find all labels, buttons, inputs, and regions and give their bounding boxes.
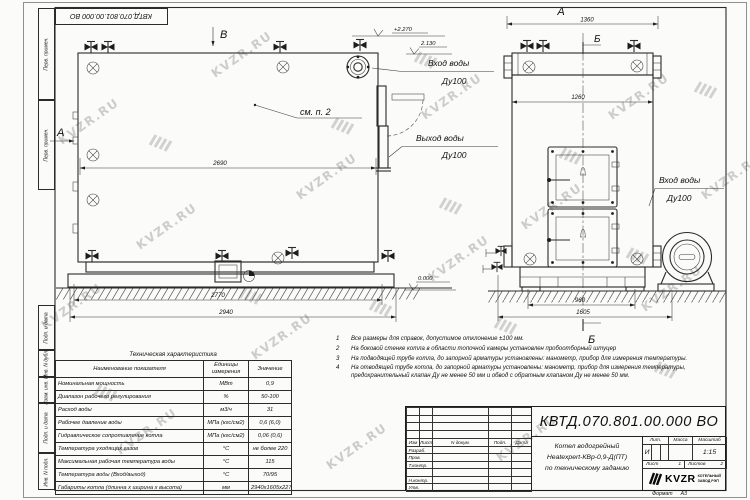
side-stamp-label: Взам. инв. N bbox=[44, 375, 50, 404]
scale-header: Масштаб bbox=[693, 437, 727, 445]
watermark-text: KVZR.RU bbox=[426, 232, 492, 284]
view-b-label: В bbox=[220, 29, 227, 41]
valve-symbol bbox=[86, 251, 99, 263]
format-value: А3 bbox=[681, 491, 687, 497]
table-row: Диапазон рабочего регулирования%50-100 bbox=[56, 391, 292, 404]
side-stamp-label: Инв. N подл. bbox=[44, 457, 50, 486]
dim-2940-label: 2940 bbox=[218, 309, 233, 316]
watermark-logo-icon bbox=[695, 82, 716, 98]
title-block: Изм Лист N докум. Подп. Дата Разраб. Про… bbox=[405, 406, 726, 491]
sheets-value: 2 bbox=[720, 462, 723, 467]
note-number: 2 bbox=[336, 346, 351, 354]
signature-row: Пров. bbox=[407, 454, 532, 462]
watermark-text: KVZR.RU bbox=[294, 150, 360, 202]
side-stamp-perv-primen-2: Перв. примен. bbox=[38, 100, 55, 190]
side-stamp-podp-data-2: Подп. и дата bbox=[38, 403, 55, 453]
valve-symbol bbox=[216, 251, 229, 263]
description-line: по техническому заданию bbox=[532, 464, 642, 475]
title-block-info: Лит. Масса Масштаб И 1:15 Лист 1 Листов … bbox=[642, 437, 726, 490]
description-line: Котел водогрейный bbox=[532, 442, 642, 453]
doc-description: Котел водогрейный Heatexpert-КВр-0,9-Д(П… bbox=[531, 437, 642, 490]
lifting-eye-icon bbox=[277, 61, 289, 73]
front-view-label: А bbox=[556, 6, 564, 18]
watermark-logo-icon bbox=[627, 248, 648, 264]
side-stamp-inv-podl: Инв. N подл. bbox=[38, 453, 55, 490]
side-stamp-label: Инв. N дубл. bbox=[44, 349, 50, 378]
lifting-eye-icon bbox=[524, 253, 536, 265]
valve-symbol bbox=[491, 262, 502, 272]
side-stamp-label: Подп. и дата bbox=[44, 412, 50, 443]
scale-value: 1:15 bbox=[693, 445, 727, 461]
watermark-logo-icon bbox=[150, 135, 171, 151]
dim-1360: А 1360 bbox=[507, 6, 658, 29]
tech-header: Единицы измерения bbox=[204, 361, 249, 378]
watermark-text: KVZR.RU bbox=[639, 262, 705, 314]
outlet-water-label: Выход воды bbox=[416, 133, 465, 143]
watermark-text: KVZR.RU bbox=[134, 200, 200, 252]
table-row: Гидравлическое сопротивление котлаМПа (к… bbox=[56, 430, 292, 443]
front-view: А 1360 Б 1260 bbox=[483, 6, 726, 346]
inlet-dn-label: Ду100 bbox=[441, 76, 467, 86]
side-stamp-inv-dubl: Инв. N дубл. bbox=[38, 350, 55, 377]
dim-960-label: 960 bbox=[575, 297, 586, 304]
table-row: Номинальная мощностьМВт0,9 bbox=[56, 378, 292, 391]
format-label: ФорматА3 bbox=[652, 491, 695, 497]
view-a-label: А bbox=[56, 127, 64, 139]
company-name-line: ЗАВОД РЭП bbox=[698, 479, 721, 483]
kvzr-logo-icon bbox=[649, 472, 663, 485]
outlet-dn-label: Ду100 bbox=[441, 150, 467, 160]
callout-see-note-2: см. п. 2 bbox=[254, 104, 362, 118]
elevation-top: +2.270 bbox=[352, 27, 445, 36]
note-number: 3 bbox=[336, 356, 351, 364]
sheet-label: Лист bbox=[646, 462, 658, 467]
drain-valves bbox=[483, 246, 512, 273]
watermark-text: KVZR.RU bbox=[56, 95, 122, 147]
dim-1260-label: 1260 bbox=[571, 95, 585, 101]
doc-number: КВТД.070.801.00.000 ВО bbox=[531, 407, 726, 437]
dim-2770-label: 2770 bbox=[210, 292, 225, 299]
watermark-text: KVZR.RU bbox=[209, 28, 275, 80]
mass-value bbox=[669, 445, 693, 461]
elevation-top-label: +2.270 bbox=[394, 27, 413, 33]
valve-symbol bbox=[102, 42, 115, 54]
side-door bbox=[377, 86, 424, 136]
note-item: 2 На боковой стенке котла в области топо… bbox=[336, 346, 710, 354]
valve-symbol bbox=[286, 248, 299, 260]
dim-2690-label: 2690 bbox=[212, 160, 227, 167]
valve-symbol bbox=[628, 41, 641, 53]
section-b-label: Б bbox=[594, 34, 601, 45]
front-base bbox=[520, 267, 645, 291]
view-arrow-B: В bbox=[213, 27, 227, 46]
sheet-value: 1 bbox=[678, 462, 681, 467]
lifting-eye-icon bbox=[87, 194, 99, 206]
description-line: Heatexpert-КВр-0,9-Д(ПТ) bbox=[532, 453, 642, 464]
watermark-logo-icon bbox=[560, 148, 581, 164]
watermark-text: KVZR.RU bbox=[699, 150, 750, 202]
ground-line-side bbox=[56, 288, 452, 300]
valve-symbol bbox=[85, 42, 98, 54]
lifting-eye-icon bbox=[631, 60, 643, 72]
lifting-eye-icon bbox=[523, 61, 535, 73]
logo-text: KVZR bbox=[665, 473, 696, 485]
lit-value: И bbox=[643, 445, 652, 461]
watermark-logo-icon bbox=[440, 198, 461, 214]
lit-header: Лит. bbox=[643, 437, 669, 445]
format-word: Формат bbox=[652, 491, 673, 497]
signature-row: Т.контр. bbox=[407, 461, 532, 469]
mass-header: Масса bbox=[669, 437, 693, 445]
top-stamp-text: КВТД.070.801.00.000 ВО bbox=[70, 12, 152, 21]
valve-symbol bbox=[354, 40, 367, 52]
side-view: 2690 2770 2940 +2.270 2.130 bbox=[50, 27, 498, 322]
flanged-connection bbox=[346, 55, 369, 78]
watermark-text: KVZR.RU bbox=[324, 420, 390, 472]
valve-symbol bbox=[537, 41, 550, 53]
lifting-eye-icon bbox=[87, 62, 99, 74]
table-row: Габариты котла (длинна х ширина х высота… bbox=[56, 482, 292, 495]
note-text: На подводящей трубе котла, до запорной а… bbox=[351, 356, 687, 364]
side-stamp-vzam-inv: Взам. инв. N bbox=[38, 377, 55, 403]
lit-cell bbox=[652, 445, 661, 461]
valve-symbol bbox=[382, 251, 395, 263]
valve-symbol bbox=[495, 246, 506, 256]
tech-table-title: Техническая характеристика bbox=[55, 351, 291, 360]
table-row: Максимальная рабочая температура воды°С1… bbox=[56, 456, 292, 469]
tech-header: Наименование показателя bbox=[56, 361, 204, 378]
sheets-label: Листов bbox=[688, 462, 705, 467]
top-corner-stamp: КВТД.070.801.00.000 ВО bbox=[55, 8, 168, 25]
tech-table: Наименование показателя Единицы измерени… bbox=[55, 360, 292, 495]
watermark-text: KVZR.RU bbox=[519, 180, 585, 232]
side-stamp-label: Подп. и дата bbox=[44, 312, 50, 343]
signature-row: Н.контр. bbox=[407, 476, 532, 484]
revision-header-row: Изм Лист N докум. Подп. Дата bbox=[407, 438, 532, 446]
inlet-water-label: Вход воды bbox=[428, 58, 470, 68]
side-stamp-perv-primen-1: Перв. примен. bbox=[38, 8, 55, 100]
watermark-logo-icon bbox=[332, 118, 353, 134]
ground-line-front bbox=[488, 291, 726, 303]
valve-symbol bbox=[274, 42, 287, 54]
note-text: Все размеры для справок, допустимое откл… bbox=[351, 336, 524, 344]
company-logo: KVZR КОТЕЛЬНЫЙ ЗАВОД РЭП bbox=[643, 468, 727, 489]
boiler-front bbox=[504, 33, 661, 312]
table-row: Расход водым3/ч31 bbox=[56, 404, 292, 417]
callout-label: см. п. 2 bbox=[300, 107, 331, 117]
watermark-text: KVZR.RU bbox=[606, 70, 672, 122]
inlet-dn-label: Ду100 bbox=[666, 193, 692, 203]
note-item: 1 Все размеры для справок, допустимое от… bbox=[336, 336, 710, 344]
tech-characteristics: Техническая характеристика Наименование … bbox=[55, 351, 291, 495]
signature-row bbox=[407, 469, 532, 477]
elevation-inlet-label: 2.130 bbox=[420, 41, 436, 47]
tech-header: Значение bbox=[249, 361, 292, 378]
side-stamp-podp-data-1: Подп. и дата bbox=[38, 305, 55, 350]
lit-cell bbox=[661, 445, 669, 461]
signature-row: Утв. bbox=[407, 484, 532, 492]
lifting-eye-icon bbox=[87, 149, 99, 161]
note-number: 4 bbox=[336, 365, 351, 381]
signature-row: Разраб. bbox=[407, 446, 532, 454]
note-text: На боковой стенке котла в области топочн… bbox=[351, 346, 616, 354]
note-item: 3 На подводящей трубе котла, до запорной… bbox=[336, 356, 710, 364]
side-stamp-label: Перв. примен. bbox=[44, 37, 50, 70]
table-row: Рабочее давление водыМПа (кгс/см2)0,6 (6… bbox=[56, 417, 292, 430]
table-row: Температура воды (Вход/выход)°С70/95 bbox=[56, 469, 292, 482]
valve-symbol bbox=[521, 41, 534, 53]
dim-1360-label: 1360 bbox=[580, 18, 594, 24]
note-text: На отводящей трубе котла, до запорной ар… bbox=[351, 365, 710, 381]
note-number: 1 bbox=[336, 336, 351, 344]
notes: 1 Все размеры для справок, допустимое от… bbox=[336, 336, 710, 383]
elevation-inlet: 2.130 bbox=[406, 41, 452, 54]
section-mark-top: Б bbox=[583, 34, 601, 54]
dim-1605-label: 1605 bbox=[576, 309, 590, 316]
elevation-zero-label: 0.000 bbox=[418, 276, 433, 282]
inlet-water-label: Вход воды bbox=[659, 175, 701, 185]
table-row: Температура уходящих газов°Сне более 220 bbox=[56, 443, 292, 456]
side-stamp-label: Перв. примен. bbox=[44, 128, 50, 161]
note-item: 4 На отводящей трубе котла, до запорной … bbox=[336, 365, 710, 381]
watermark-logo-icon bbox=[370, 300, 391, 316]
side-outlet-label: Выход воды Ду100 bbox=[389, 133, 498, 160]
revision-table: Изм Лист N докум. Подп. Дата Разраб. Про… bbox=[406, 407, 532, 492]
